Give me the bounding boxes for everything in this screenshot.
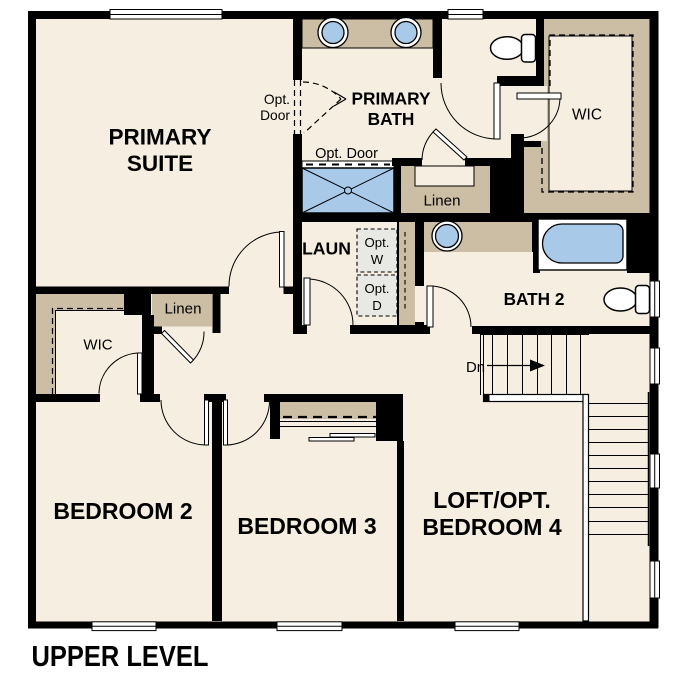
- svg-text:Opt. Door: Opt. Door: [315, 146, 378, 162]
- svg-text:UPPER LEVEL: UPPER LEVEL: [32, 641, 209, 673]
- svg-text:WIC: WIC: [572, 107, 602, 124]
- svg-text:LOFT/OPT.: LOFT/OPT.: [433, 487, 551, 513]
- svg-text:BATH 2: BATH 2: [504, 289, 565, 309]
- svg-text:WIC: WIC: [83, 337, 112, 354]
- svg-text:Opt.: Opt.: [365, 235, 390, 250]
- svg-text:BEDROOM 3: BEDROOM 3: [237, 513, 376, 539]
- svg-text:SUITE: SUITE: [127, 151, 193, 176]
- svg-text:Linen: Linen: [165, 301, 202, 318]
- svg-text:BATH: BATH: [368, 109, 415, 129]
- svg-text:D: D: [372, 298, 382, 313]
- svg-text:Dn: Dn: [466, 360, 485, 376]
- svg-text:Door: Door: [260, 108, 290, 123]
- svg-text:PRIMARY: PRIMARY: [109, 125, 212, 150]
- svg-text:Linen: Linen: [424, 193, 461, 210]
- svg-text:BEDROOM 2: BEDROOM 2: [53, 498, 192, 524]
- svg-text:Opt.: Opt.: [264, 92, 290, 107]
- svg-text:LAUN: LAUN: [302, 239, 351, 259]
- svg-text:BEDROOM 4: BEDROOM 4: [422, 514, 562, 540]
- svg-text:PRIMARY: PRIMARY: [351, 89, 431, 109]
- svg-text:W: W: [371, 252, 384, 267]
- svg-text:Opt.: Opt.: [365, 281, 390, 296]
